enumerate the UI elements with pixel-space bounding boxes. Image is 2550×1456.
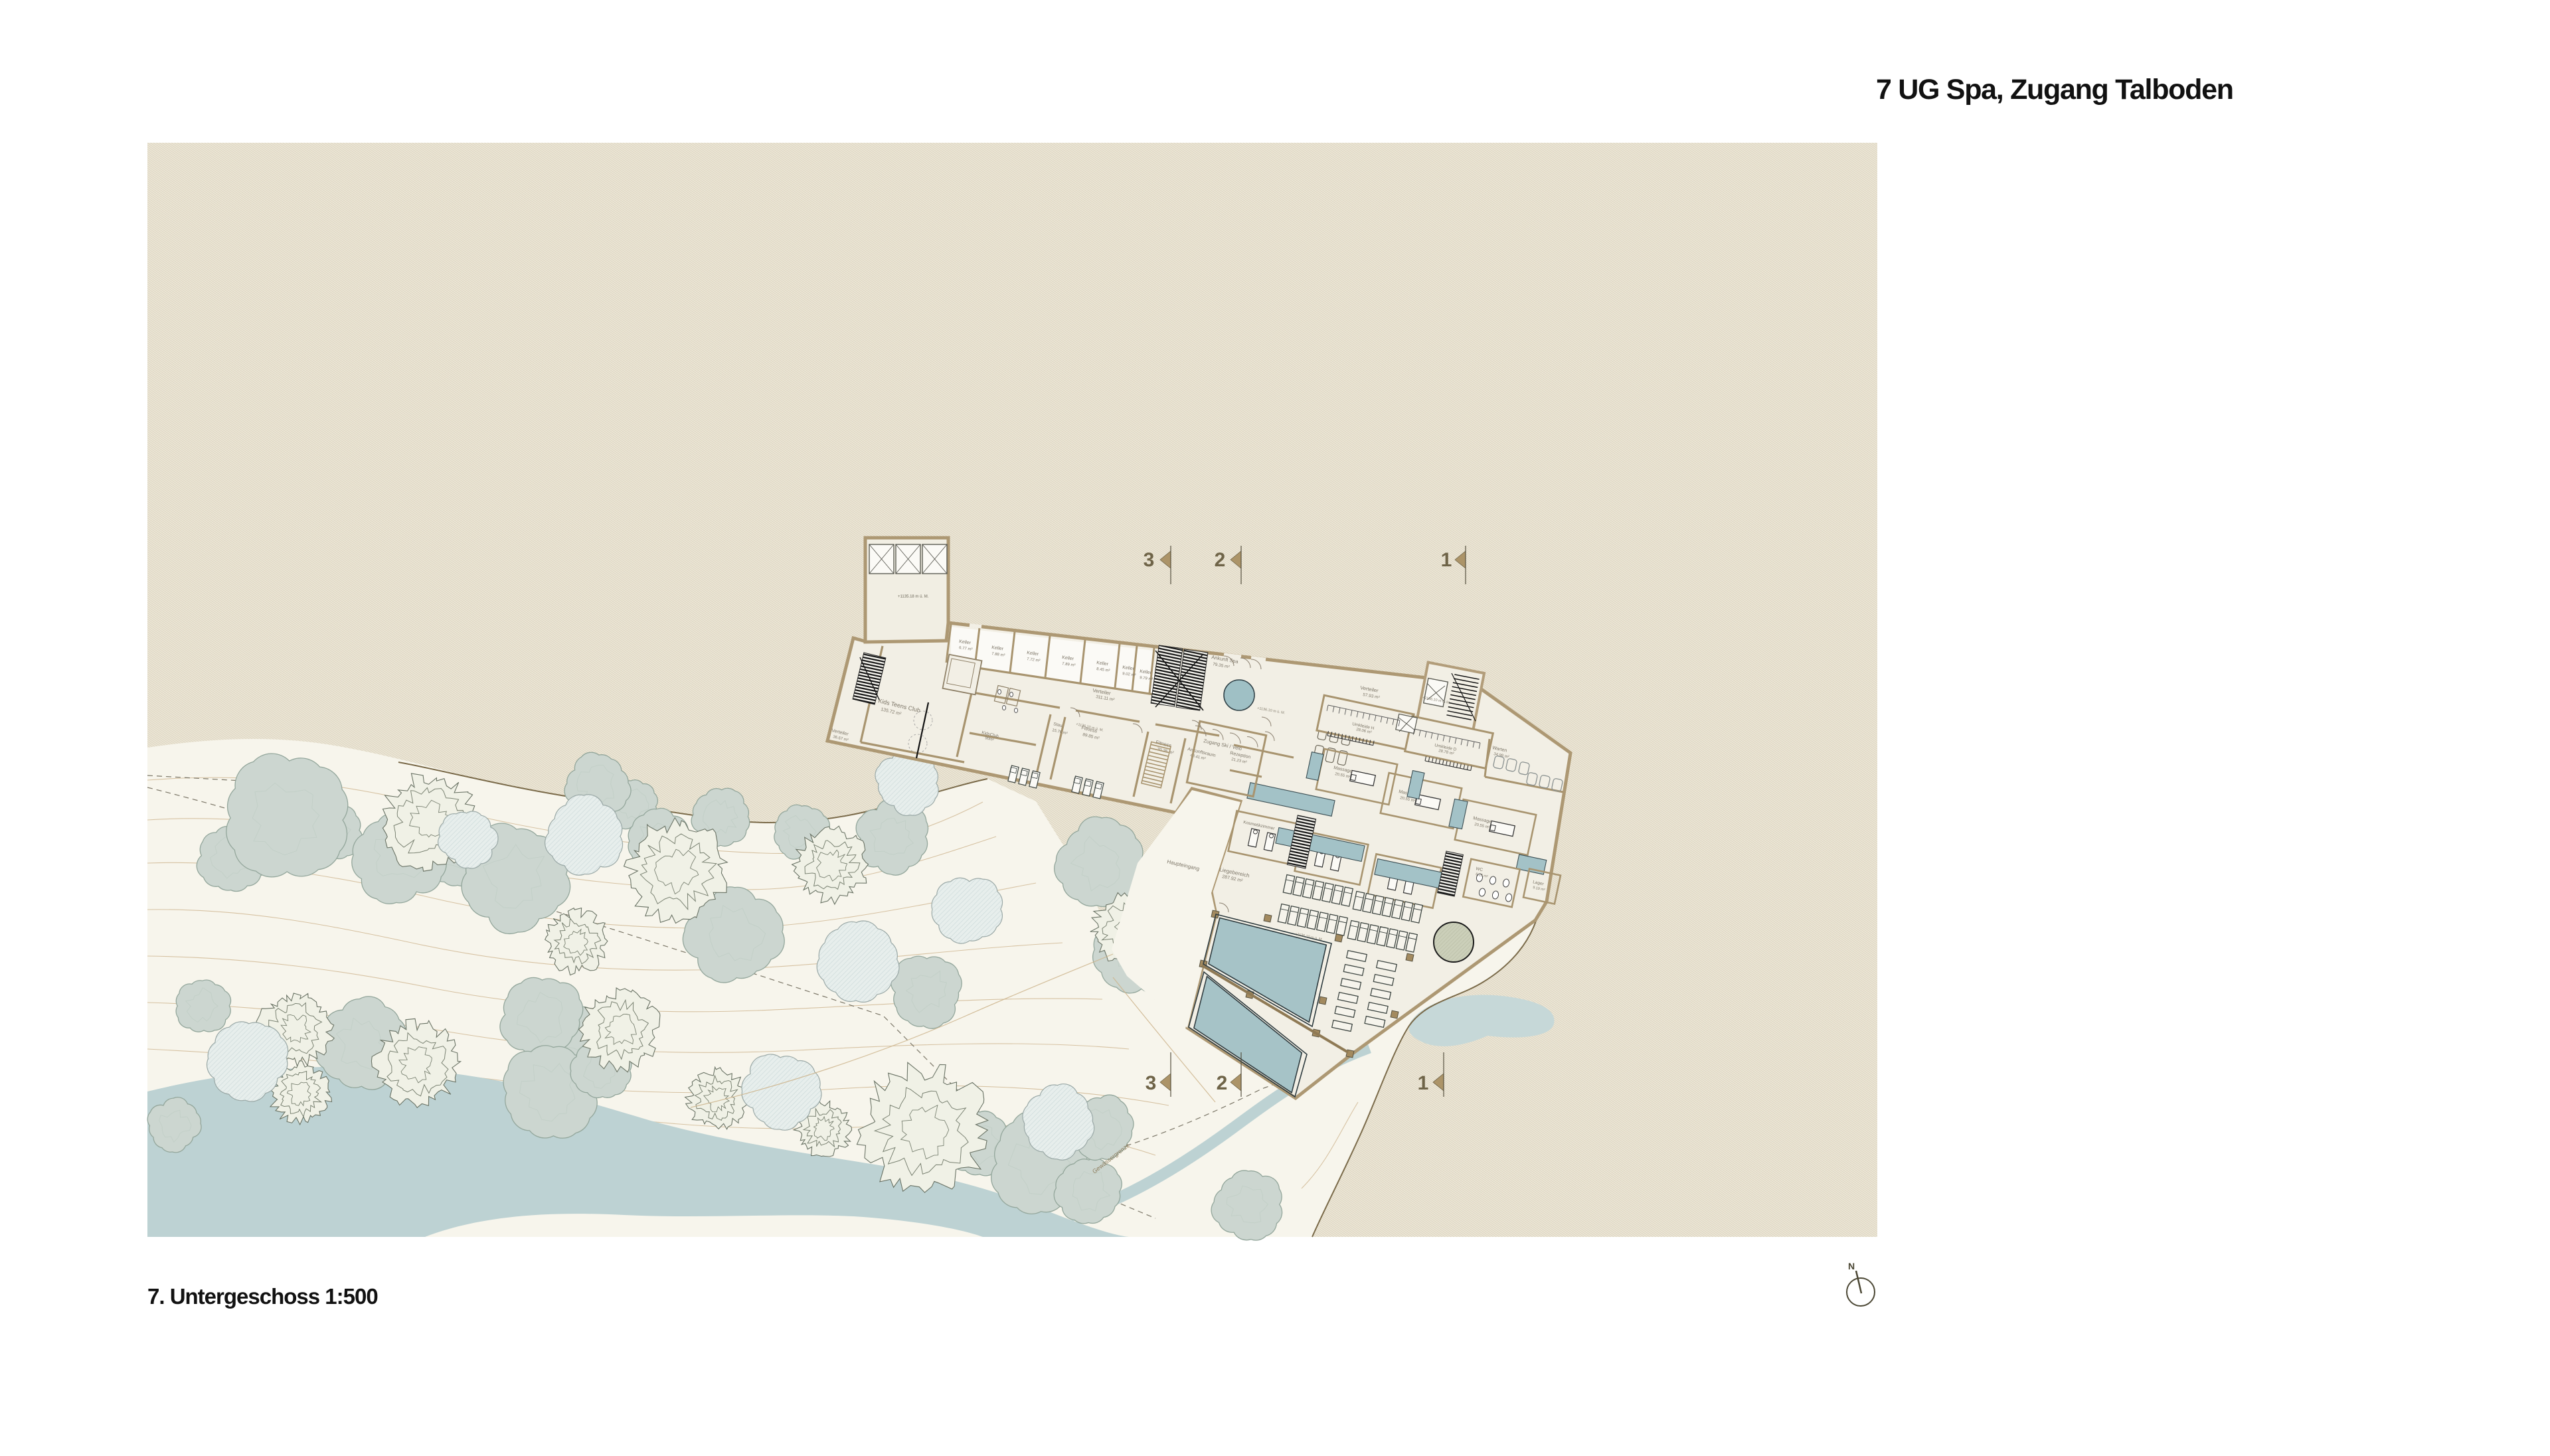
svg-text:1: 1 [1441,549,1452,571]
svg-text:7. Untergeschoss 1:500: 7. Untergeschoss 1:500 [147,1284,378,1309]
svg-text:N: N [1848,1261,1855,1271]
svg-text:3: 3 [1146,1072,1157,1094]
svg-text:2: 2 [1217,1072,1228,1094]
svg-text:2: 2 [1215,549,1226,571]
svg-text:+1135.18 m ü. M.: +1135.18 m ü. M. [898,595,929,599]
svg-text:7 UG Spa, Zugang Talboden: 7 UG Spa, Zugang Talboden [1876,74,2233,106]
svg-text:1: 1 [1418,1072,1429,1094]
svg-text:3: 3 [1144,549,1155,571]
